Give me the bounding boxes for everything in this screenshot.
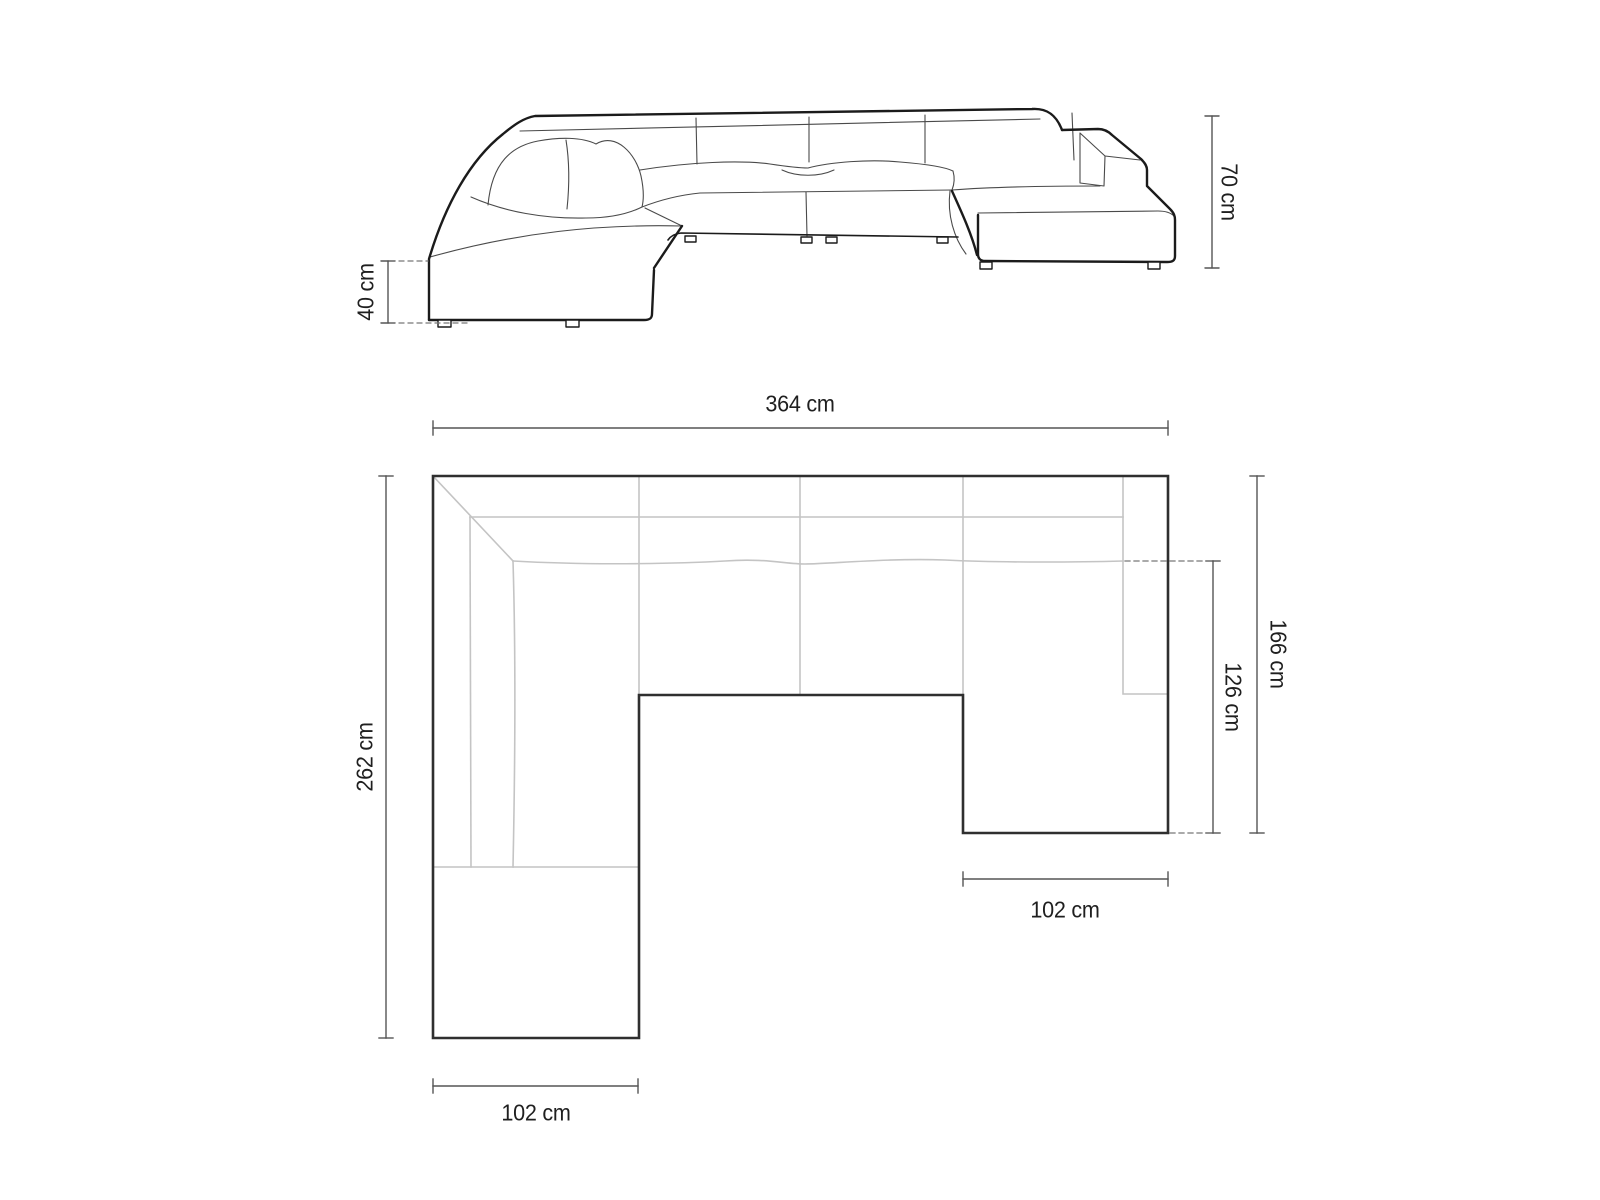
plan-right-chaise-width-label: 102 cm: [1030, 897, 1099, 924]
sofa-dimensions-diagram: 70 cm 40 cm 364 cm 262 cm 166 cm 126 cm …: [0, 0, 1600, 1200]
plan-left-chaise-width-label: 102 cm: [501, 1100, 570, 1127]
plan-right-depth-label: 166 cm: [1265, 619, 1292, 688]
plan-seam-lines: [433, 476, 1168, 867]
side-seat-height-label: 40 cm: [353, 263, 380, 320]
sofa-side-legs: [438, 236, 1160, 327]
plan-width-label: 364 cm: [765, 391, 834, 418]
side-height-label: 70 cm: [1216, 163, 1243, 220]
diagram-canvas: [0, 0, 1600, 1200]
plan-left-depth-label: 262 cm: [352, 722, 379, 791]
side-dimension-lines: [381, 116, 1219, 323]
side-view-drawing: [381, 109, 1219, 327]
plan-right-inner-depth-label: 126 cm: [1220, 662, 1247, 731]
plan-view-drawing: [379, 421, 1264, 1093]
plan-dimension-lines: [379, 421, 1264, 1093]
